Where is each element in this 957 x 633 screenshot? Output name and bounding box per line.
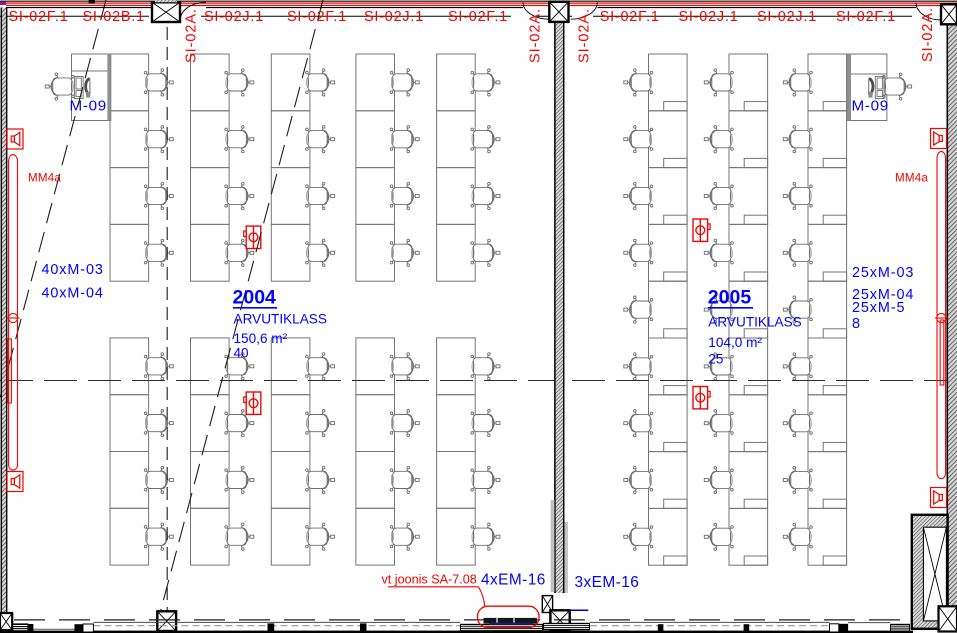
svg-text:SI-02J.1: SI-02J.1	[204, 9, 264, 25]
svg-text:40: 40	[234, 346, 250, 361]
svg-text:SI-02B.1: SI-02B.1	[82, 9, 144, 25]
svg-text:ARVUTIKLASS: ARVUTIKLASS	[234, 312, 327, 327]
svg-text:SI-02F.1: SI-02F.1	[836, 9, 896, 25]
svg-text:SI-02F.1: SI-02F.1	[9, 9, 69, 25]
svg-text:40xM-04: 40xM-04	[42, 286, 104, 302]
svg-text:2005: 2005	[708, 287, 752, 309]
svg-text:MM4a: MM4a	[895, 172, 928, 185]
svg-text:SI-02J.1: SI-02J.1	[757, 9, 817, 25]
svg-text:SI-02F.1: SI-02F.1	[448, 9, 508, 25]
svg-text:4xEM-16: 4xEM-16	[481, 572, 546, 589]
svg-text:M-09: M-09	[70, 98, 107, 115]
svg-text:3xEM-16: 3xEM-16	[575, 574, 640, 591]
svg-text:25xM-5: 25xM-5	[852, 300, 905, 316]
svg-text:150,6 m²: 150,6 m²	[234, 331, 288, 346]
svg-text:vt joonis SA-7.08: vt joonis SA-7.08	[382, 572, 477, 586]
svg-text:ARVUTIKLASS: ARVUTIKLASS	[708, 315, 801, 330]
svg-text:SI-02F.1: SI-02F.1	[600, 9, 660, 25]
svg-text:8: 8	[852, 316, 860, 332]
svg-text:SI-02J.1: SI-02J.1	[679, 9, 739, 25]
svg-text:40xM-03: 40xM-03	[42, 262, 104, 278]
svg-text:SI-02A.: SI-02A.	[577, 8, 593, 63]
svg-text:M-09: M-09	[852, 98, 889, 115]
svg-text:SI-02F.1: SI-02F.1	[287, 9, 347, 25]
svg-text:SI-02A.: SI-02A.	[920, 7, 936, 62]
svg-text:25: 25	[708, 352, 723, 367]
svg-text:SI-02A.: SI-02A.	[184, 8, 200, 63]
svg-text:MM4a: MM4a	[28, 172, 61, 185]
svg-text:104,0 m²: 104,0 m²	[708, 335, 762, 350]
svg-text:SI-02J.1: SI-02J.1	[364, 9, 424, 25]
svg-text:25xM-03: 25xM-03	[852, 265, 914, 281]
svg-text:SI-02A.: SI-02A.	[528, 8, 544, 63]
svg-text:2004: 2004	[233, 287, 277, 309]
